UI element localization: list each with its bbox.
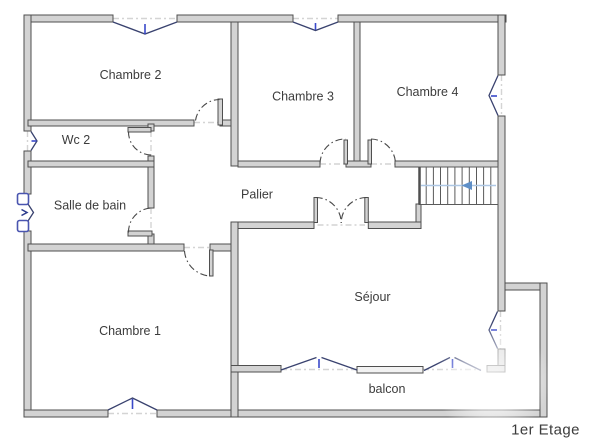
svg-text:balcon: balcon: [369, 382, 406, 396]
svg-text:Chambre 3: Chambre 3: [272, 90, 334, 104]
svg-text:Chambre 4: Chambre 4: [397, 85, 459, 99]
svg-text:Chambre 2: Chambre 2: [100, 68, 162, 82]
svg-text:Wc 2: Wc 2: [62, 133, 91, 147]
svg-text:1er Etage: 1er Etage: [511, 422, 580, 439]
svg-text:Palier: Palier: [241, 188, 273, 202]
svg-text:Chambre 1: Chambre 1: [99, 324, 161, 338]
svg-text:Séjour: Séjour: [354, 290, 390, 304]
svg-text:Salle de bain: Salle de bain: [54, 199, 126, 213]
